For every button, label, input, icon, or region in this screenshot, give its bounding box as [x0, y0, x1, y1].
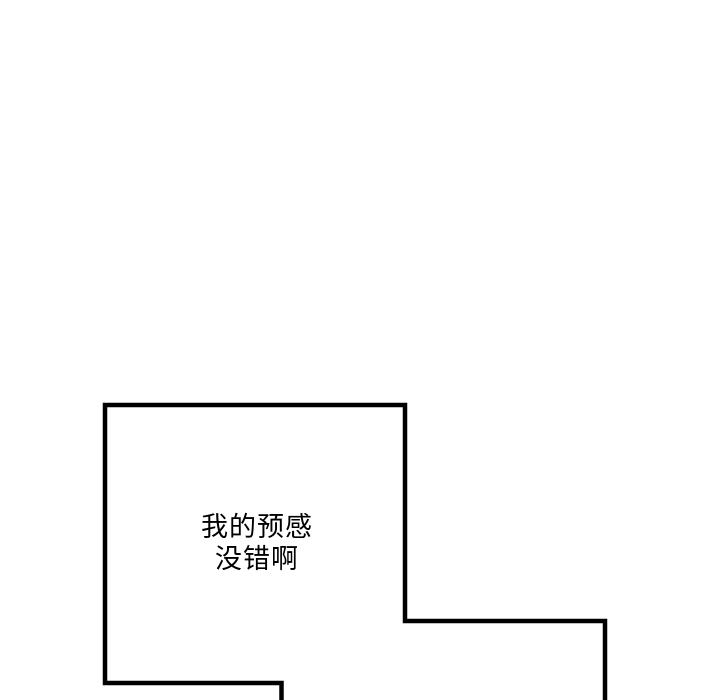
dialogue-line-1: 我的预感 [107, 511, 407, 543]
dialogue-text: 我的预感 没错啊 [107, 511, 407, 575]
comic-page: 我的预感 没错啊 [0, 0, 720, 700]
dialogue-line-2: 没错啊 [107, 543, 407, 575]
panel-border [0, 0, 720, 700]
